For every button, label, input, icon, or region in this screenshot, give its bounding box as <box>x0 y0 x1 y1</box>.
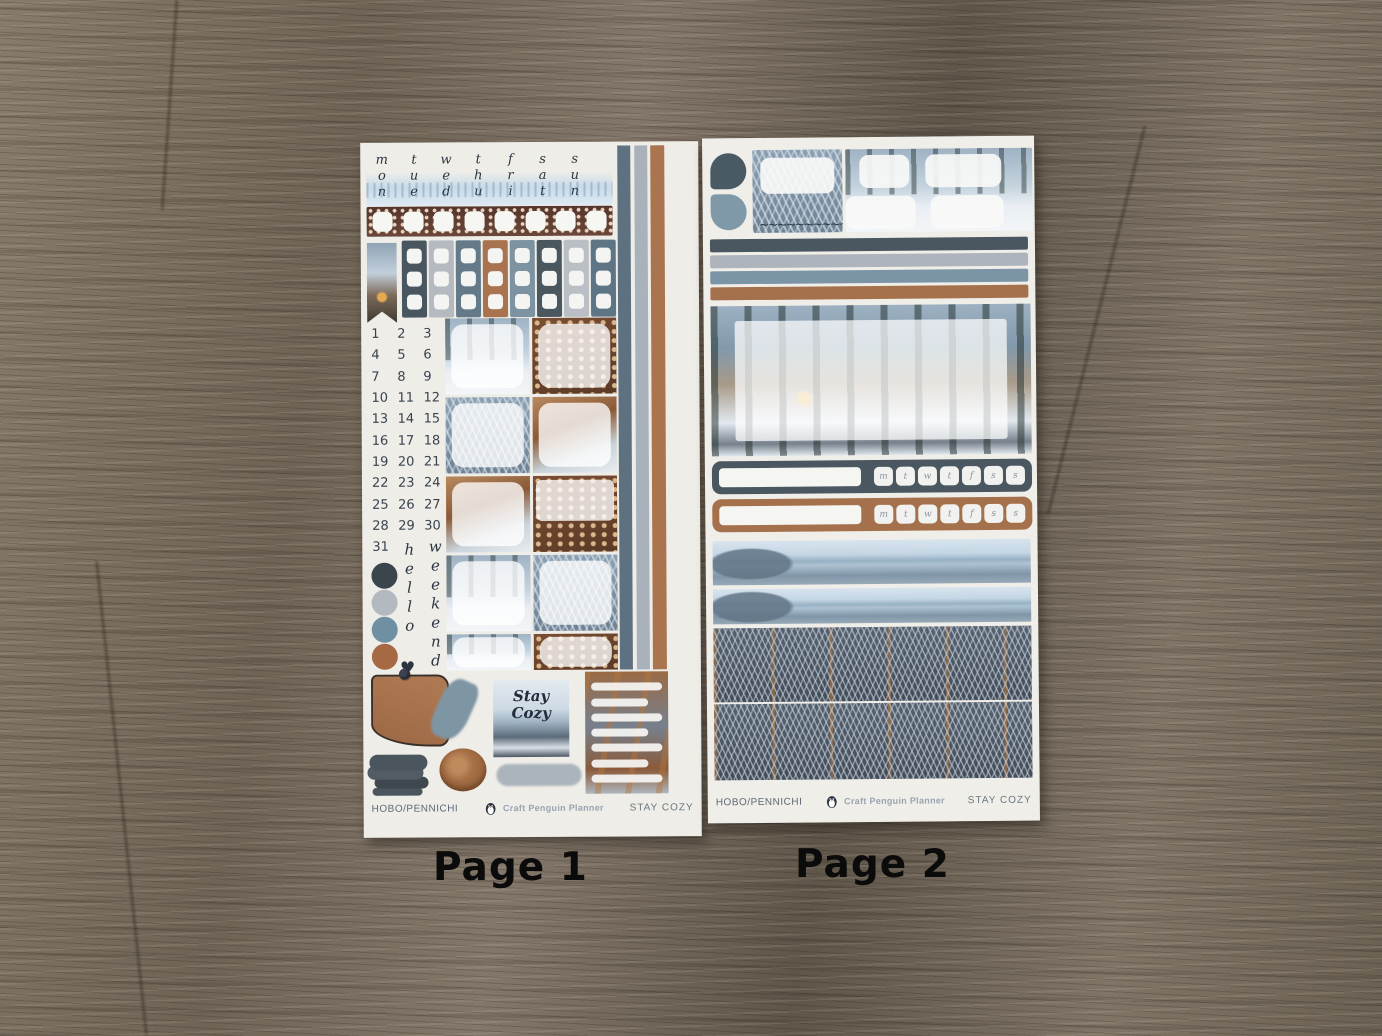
sheet-footer: HOBO/PENNICHI Craft Penguin Planner STAY… <box>716 793 1032 810</box>
date-number: 7 <box>371 366 397 387</box>
habit-tracker-sticker-brown: m t w t f s s <box>712 497 1032 533</box>
push-pin-icon <box>399 669 410 680</box>
date-number: 23 <box>398 473 424 494</box>
header-strip-blue <box>710 269 1028 285</box>
tracker-day-square: s <box>1006 504 1025 523</box>
date-cover-square <box>596 271 611 286</box>
page-2-caption: Page 2 <box>795 842 950 887</box>
checkbox-square <box>525 211 545 231</box>
teardrop-dot-sticker-blue <box>711 194 747 230</box>
photo-box-sticker <box>532 318 616 394</box>
quote-line: Cozy <box>512 705 551 722</box>
photo-box-sticker <box>446 397 530 473</box>
date-number: 26 <box>398 494 424 515</box>
tracker-day-row: m t w t f s s <box>874 504 1025 524</box>
date-cover-square <box>461 248 476 263</box>
label-box <box>859 155 909 188</box>
date-cover-square <box>434 271 449 286</box>
checkbox-square <box>556 211 576 231</box>
wood-plank-seam <box>161 0 179 210</box>
checkbox-square <box>434 211 454 231</box>
tracker-day-square: f <box>962 504 981 523</box>
wood-plank-seam <box>1047 126 1147 515</box>
writing-box-overlay <box>451 324 524 388</box>
date-cover-square <box>407 272 422 287</box>
cabin-photo-pennant-sticker <box>367 243 397 323</box>
writing-box-overlay <box>452 482 525 546</box>
date-number: 29 <box>398 515 424 536</box>
brand-name: Craft Penguin Planner <box>503 803 604 814</box>
weekend-script-text: weekend <box>426 537 445 679</box>
date-number: 25 <box>372 494 398 515</box>
kit-theme-label: STAY COZY <box>968 794 1032 806</box>
tracker-day-square: s <box>1006 466 1025 485</box>
list-line <box>591 728 648 736</box>
photo-wood-background: mon tue wed thu fri sat sun <box>0 0 1382 1036</box>
weekday-header-mon: mon <box>374 153 389 201</box>
list-line <box>591 759 648 767</box>
photo-box-sticker-grid <box>445 318 618 671</box>
frosted-pine-photo-sticker <box>713 626 1032 703</box>
kit-size-label: HOBO/PENNICHI <box>372 803 459 814</box>
mountain-lake-strip-sticker <box>713 539 1031 586</box>
quote-line: Stay <box>513 688 549 705</box>
weekday-header-fri: fri <box>503 152 518 200</box>
date-number: 2 <box>397 324 423 345</box>
date-cover-square <box>515 271 530 286</box>
handwriting-scribble: ~~~~~~~~~~~ <box>759 217 843 233</box>
wood-plank-seam <box>95 561 148 1035</box>
checkbox-square <box>464 211 484 231</box>
photo-box-sticker <box>446 476 530 552</box>
date-cover-square <box>434 294 449 309</box>
date-number: 14 <box>398 409 424 430</box>
date-cover-square <box>542 271 557 286</box>
list-line <box>591 698 648 706</box>
checkbox-square <box>586 211 606 231</box>
date-number: 1 <box>371 324 397 345</box>
palette-dot-gray <box>372 590 398 616</box>
tracker-day-square: s <box>984 466 1003 485</box>
label-box <box>846 196 916 230</box>
sheet-footer: HOBO/PENNICHI Craft Penguin Planner STAY… <box>372 800 694 816</box>
date-number: 17 <box>398 430 424 451</box>
tracker-day-square: w <box>918 466 937 485</box>
teardrop-dot-sticker-dark <box>710 153 746 189</box>
tracker-day-square: f <box>962 466 981 485</box>
date-cover-square <box>434 248 449 263</box>
weekday-header-sat: sat <box>535 152 550 200</box>
palette-dot-blue <box>372 617 398 643</box>
palette-dot-brown <box>372 644 398 670</box>
date-number: 22 <box>372 473 398 494</box>
writing-box-overlay <box>540 636 612 667</box>
date-number: 28 <box>372 515 398 536</box>
date-cover-square <box>461 271 476 286</box>
label-box <box>931 195 1004 229</box>
writing-box-overlay <box>536 479 613 520</box>
list-line <box>591 713 662 721</box>
photo-box-sticker <box>533 397 617 473</box>
tracker-day-square: t <box>940 504 959 523</box>
date-cover-column <box>510 240 535 317</box>
sidebar-strip-sticker-brown <box>650 145 667 669</box>
tracker-day-square: t <box>896 467 915 486</box>
palette-dot-stickers <box>371 563 398 670</box>
header-strip-dark <box>710 237 1028 253</box>
writing-box-overlay <box>735 319 1008 441</box>
date-number: 13 <box>372 409 398 430</box>
date-number: 5 <box>397 345 423 366</box>
date-cover-square <box>488 271 503 286</box>
date-cover-square <box>488 248 503 263</box>
weekday-header-thu: thu <box>471 152 486 200</box>
writing-box-overlay <box>538 403 611 467</box>
pinecone-checkbox-washi-strip <box>367 206 613 237</box>
date-cover-square <box>542 294 557 309</box>
date-cover-square <box>461 294 476 309</box>
weekday-header-wed: wed <box>439 152 454 200</box>
label-photo-sticker: ~~~~~~~~~~~ <box>752 149 843 233</box>
date-cover-square <box>596 294 611 309</box>
brand-label: Craft Penguin Planner <box>484 801 604 816</box>
photo-box-sticker <box>533 555 617 631</box>
writing-box-overlay <box>452 561 525 625</box>
date-cover-square <box>569 248 584 263</box>
label-photo-sticker-group <box>845 148 1033 233</box>
cabin-photo-sticker-large <box>710 304 1031 457</box>
hello-script-text: hello <box>400 541 419 653</box>
brand-label: Craft Penguin Planner <box>825 793 945 808</box>
date-cover-square <box>488 294 503 309</box>
writing-box-overlay <box>538 324 611 388</box>
list-line <box>591 774 662 782</box>
habit-tracker-sticker-dark: m t w t f s s <box>712 459 1032 495</box>
date-cover-square <box>515 248 530 263</box>
frosted-pine-photo-sticker <box>714 702 1033 781</box>
date-cover-column <box>456 240 481 317</box>
label-box <box>760 157 834 194</box>
photo-box-sticker <box>446 555 530 631</box>
date-cover-square <box>542 248 557 263</box>
date-cover-square <box>596 248 611 263</box>
weekday-header-sun: sun <box>567 152 582 200</box>
photo-box-sticker <box>445 318 529 394</box>
writing-box-overlay <box>451 403 524 467</box>
weekday-header-tue: tue <box>406 153 421 201</box>
tracker-day-square: t <box>940 466 959 485</box>
kit-size-label: HOBO/PENNICHI <box>716 796 803 808</box>
writing-box-overlay <box>453 637 525 668</box>
date-cover-grid <box>402 240 616 318</box>
date-number: 11 <box>397 387 423 408</box>
date-number: 10 <box>371 388 397 409</box>
stay-cozy-quote-sticker: Stay Cozy <box>493 680 569 757</box>
penguin-logo-icon <box>484 801 498 815</box>
date-cover-square <box>515 294 530 309</box>
date-cover-column <box>537 240 562 317</box>
date-number-sheet: 1 2 3 4 5 6 7 8 9 10 11 12 13 14 15 16 1… <box>371 323 450 558</box>
date-cover-square <box>569 294 584 309</box>
list-line <box>591 744 662 752</box>
tracker-day-square: s <box>984 504 1003 523</box>
tracker-day-square: m <box>874 467 893 486</box>
date-number: 31 <box>372 537 398 558</box>
dark-scribble-sticker <box>369 755 427 771</box>
brand-name: Craft Penguin Planner <box>844 795 945 806</box>
kit-theme-label: STAY COZY <box>630 802 694 813</box>
label-box <box>925 154 1001 188</box>
tracker-label-box <box>719 505 861 525</box>
date-cover-column <box>483 240 508 317</box>
date-cover-square <box>407 295 422 310</box>
sticker-sheet-page1: mon tue wed thu fri sat sun <box>360 141 702 838</box>
tracker-day-row: m t w t f s s <box>874 466 1025 486</box>
date-cover-column <box>402 241 427 318</box>
date-cover-square <box>569 271 584 286</box>
tracker-label-box <box>719 467 861 487</box>
date-cover-column <box>429 240 454 317</box>
cinnamon-bun-sticker <box>439 748 486 791</box>
date-cover-column <box>564 240 589 317</box>
tracker-day-square: m <box>874 505 893 524</box>
list-line <box>591 683 662 691</box>
mountain-lake-strip-sticker <box>713 587 1031 625</box>
sticker-sheet-page2: ~~~~~~~~~~~ m t w t f s s <box>702 136 1040 824</box>
palette-dot-charcoal <box>371 563 397 589</box>
date-cover-square <box>407 249 422 264</box>
date-cover-column <box>591 240 616 317</box>
sidebar-strip-sticker-gray <box>634 145 650 669</box>
tracker-day-square: t <box>896 505 915 524</box>
date-number: 4 <box>371 345 397 366</box>
header-strip-brown <box>710 285 1028 301</box>
photo-box-sticker-small <box>534 634 618 670</box>
weekday-header-row: mon tue wed thu fri sat sun <box>374 152 582 201</box>
checkbox-square <box>403 212 423 232</box>
checkbox-square <box>495 211 515 231</box>
list-washi-sticker <box>585 671 669 793</box>
date-number: 8 <box>397 366 423 387</box>
photo-box-sticker-small <box>447 634 531 670</box>
writing-box-overlay <box>539 561 612 625</box>
photo-box-sticker <box>533 476 617 552</box>
date-number: 19 <box>372 451 398 472</box>
date-number: 20 <box>398 451 424 472</box>
gray-brush-stroke-sticker <box>496 764 581 786</box>
penguin-logo-icon <box>825 794 839 808</box>
tracker-day-square: w <box>918 504 937 523</box>
sidebar-strip-sticker-blue <box>617 145 633 669</box>
page-1-caption: Page 1 <box>433 845 588 890</box>
header-strip-gray <box>710 253 1028 269</box>
checkbox-square <box>373 212 393 232</box>
date-number: 16 <box>372 430 398 451</box>
